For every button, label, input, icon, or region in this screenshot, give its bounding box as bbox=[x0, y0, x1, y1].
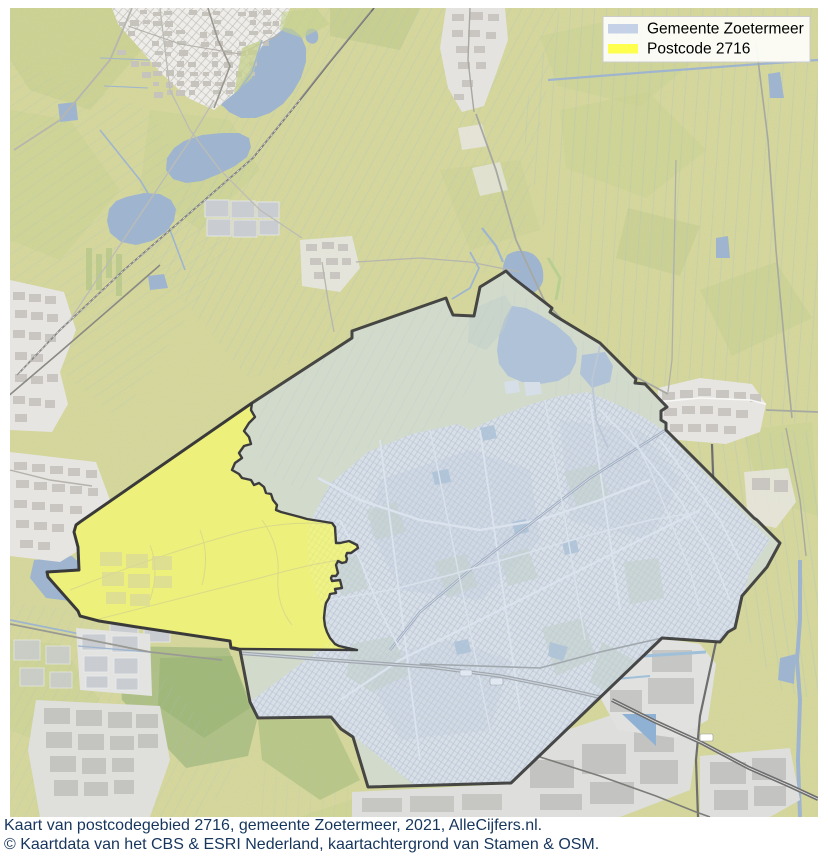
svg-text:Gemeente Zoetermeer: Gemeente Zoetermeer bbox=[647, 21, 804, 38]
svg-text:© Kaartdata van het CBS & ESRI: © Kaartdata van het CBS & ESRI Nederland… bbox=[4, 836, 599, 853]
svg-text:Kaart van postcodegebied 2716,: Kaart van postcodegebied 2716, gemeente … bbox=[4, 817, 542, 834]
svg-text:Postcode 2716: Postcode 2716 bbox=[647, 41, 750, 58]
